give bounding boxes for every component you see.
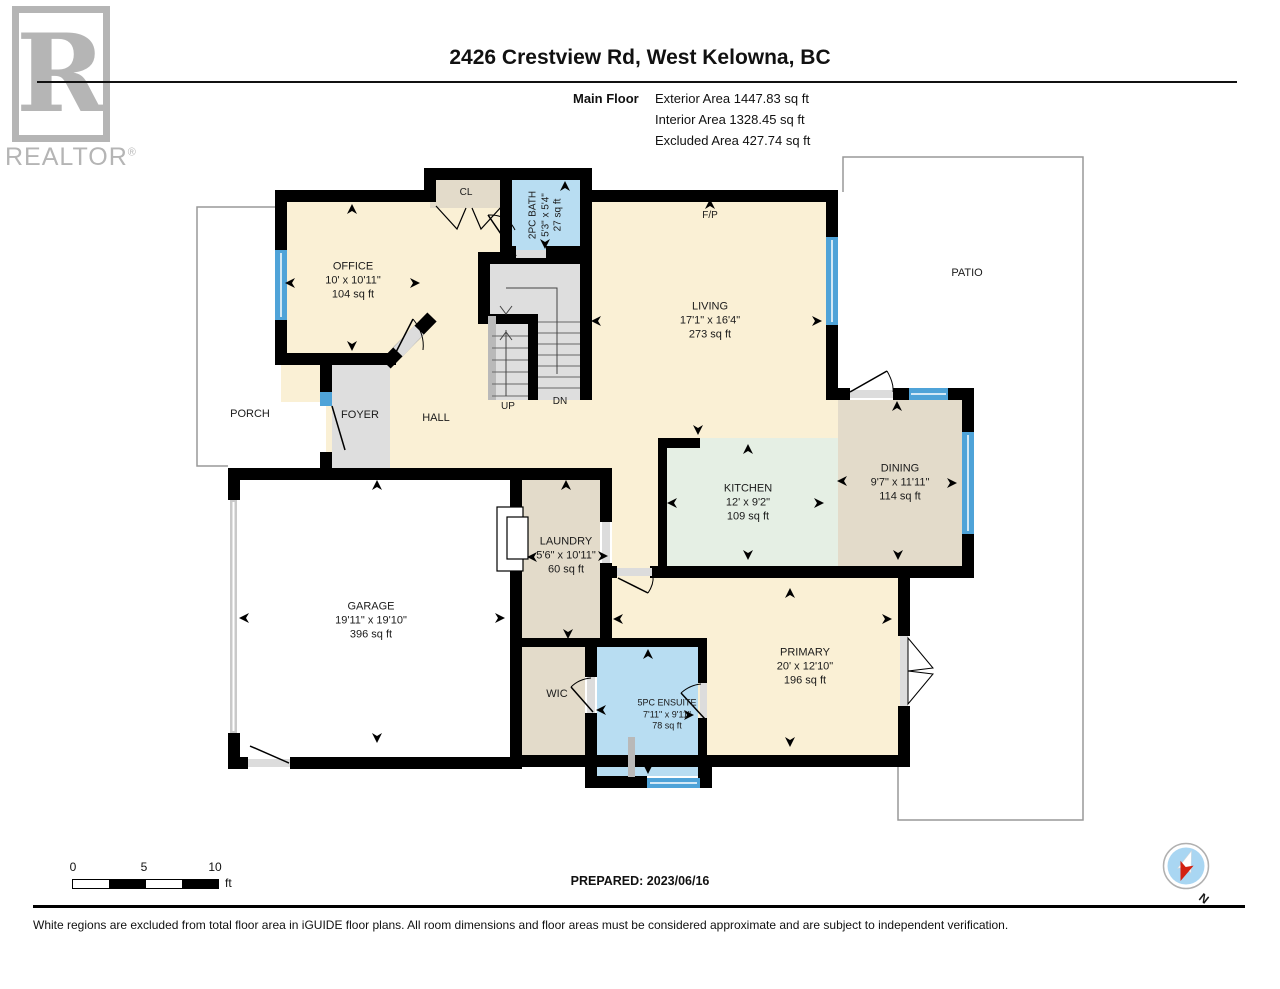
room-label-office: OFFICE 10' x 10'11" 104 sq ft [325, 260, 381, 301]
stairs-up-label: UP [501, 401, 515, 414]
room-label-garage: GARAGE 19'11" x 19'10" 396 sq ft [335, 600, 407, 641]
room-label-primary: PRIMARY 20' x 12'10" 196 sq ft [777, 646, 833, 687]
french-doors [908, 638, 933, 704]
room-label-porch: PORCH [230, 408, 270, 422]
scale-bar-segments [72, 879, 219, 889]
porch-outline [197, 207, 275, 466]
scale-tick-5: 5 [141, 860, 148, 874]
disclaimer-text: White regions are excluded from total fl… [33, 918, 1008, 932]
floorplan-page: R REALTOR® 2426 Crestview Rd, West Kelow… [0, 0, 1280, 989]
patio-door [850, 371, 887, 392]
scale-tick-0: 0 [70, 860, 77, 874]
room-label-2pc-bath: 2PC BATH 5'3" x 5'4" 27 sq ft [527, 191, 565, 239]
room-label-foyer: FOYER [341, 409, 379, 423]
room-label-ensuite: 5PC ENSUITE 7'11" x 9'11" 78 sq ft [637, 697, 696, 732]
scale-tick-10: 10 [208, 860, 221, 874]
prepared-date: PREPARED: 2023/06/16 [571, 874, 710, 888]
scale-bar: 0 5 10 ft [72, 860, 252, 900]
room-label-hall: HALL [422, 412, 450, 426]
room-label-laundry: LAUNDRY 5'6" x 10'11" 60 sq ft [536, 535, 596, 576]
foyer-sidelight-window [320, 392, 332, 406]
stairs-dn-label: DN [553, 396, 567, 409]
footer-rule [33, 905, 1245, 908]
floorplan-drawing [0, 0, 1280, 989]
room-label-closet: CL [460, 187, 473, 200]
fireplace-label: F/P [702, 210, 718, 223]
room-label-wic: WIC [546, 688, 567, 702]
room-label-patio: PATIO [951, 267, 982, 281]
scale-unit: ft [225, 876, 232, 890]
shower-partition [628, 737, 635, 777]
room-label-living: LIVING 17'1" x 16'4" 273 sq ft [680, 300, 740, 341]
room-label-dining: DINING 9'7" x 11'11" 114 sq ft [871, 462, 930, 503]
room-label-kitchen: KITCHEN 12' x 9'2" 109 sq ft [724, 482, 772, 523]
laundry-appliance [507, 517, 528, 559]
compass-icon: N [1155, 838, 1225, 910]
